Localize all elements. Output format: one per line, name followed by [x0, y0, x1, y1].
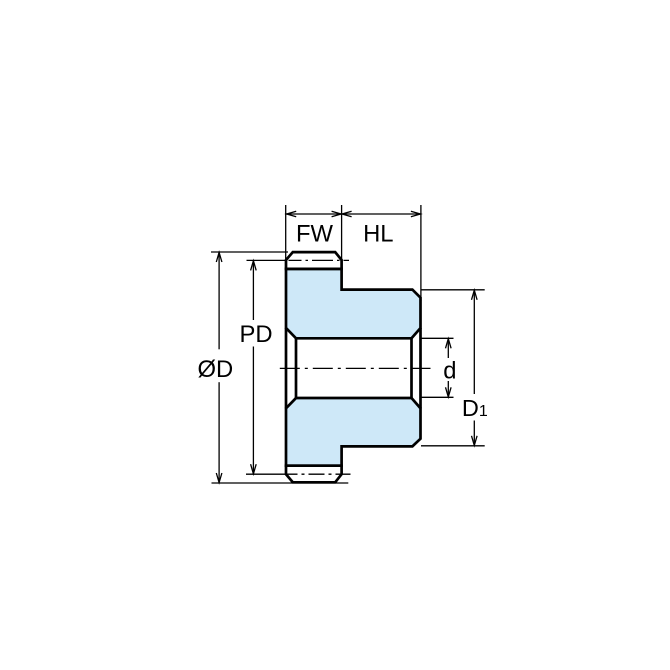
svg-text:ØD: ØD [197, 356, 233, 383]
svg-text:FW: FW [296, 221, 334, 248]
svg-text:d: d [443, 358, 456, 385]
svg-text:PD: PD [239, 321, 272, 348]
svg-text:HL: HL [363, 221, 393, 248]
